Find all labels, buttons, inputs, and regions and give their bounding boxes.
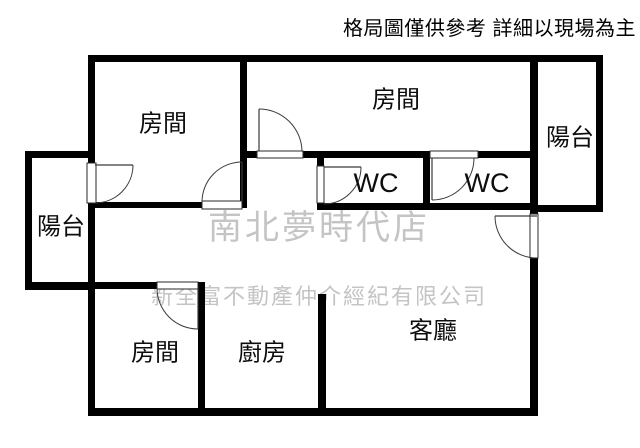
wall: [530, 55, 538, 205]
bedroom-1-door-arc: [202, 162, 242, 202]
wall: [530, 258, 538, 416]
wall: [478, 151, 538, 158]
bedroom-2-door-opening: [257, 151, 303, 158]
wall: [318, 294, 326, 416]
wall: [240, 55, 247, 208]
wc-1-label: WC: [354, 168, 399, 198]
wall: [88, 408, 538, 416]
bedroom-3-door-opening: [157, 282, 198, 289]
wc-1-door-opening: [317, 166, 324, 203]
bedroom-3-door-arc: [157, 288, 198, 329]
wall: [88, 203, 95, 416]
bedroom-1-label: 房間: [139, 111, 187, 138]
wall: [25, 282, 95, 290]
wall: [596, 55, 603, 212]
bedroom-2-door-arc: [259, 109, 302, 151]
wall: [247, 151, 257, 158]
wall: [88, 55, 95, 163]
wall: [88, 55, 603, 62]
wall: [198, 282, 205, 416]
wall: [530, 205, 603, 212]
wall: [88, 282, 157, 289]
floorplan-page: 南北夢時代店 新全富不動產仲介經紀有限公司 房間房間陽台WCWC陽台房間廚房客廳…: [0, 0, 640, 448]
bedroom-3-label: 房間: [131, 340, 179, 367]
wall: [303, 151, 430, 158]
wall: [317, 203, 538, 210]
entry-door-opening: [530, 214, 538, 258]
wall: [423, 158, 430, 203]
floorplan-svg: 房間房間陽台WCWC陽台房間廚房客廳: [0, 0, 640, 448]
living-room-label: 客廳: [409, 318, 457, 345]
wc-2-door-opening: [430, 151, 478, 158]
bedroom-2-label: 房間: [372, 87, 420, 114]
wall: [25, 151, 32, 290]
wall: [88, 202, 202, 208]
balcony-left-door-arc: [95, 165, 133, 203]
balcony-left-label: 陽台: [37, 214, 85, 241]
kitchen-label: 廚房: [238, 340, 286, 367]
wall: [25, 151, 95, 158]
wc-2-label: WC: [465, 168, 510, 198]
bedroom-1-door-opening: [202, 201, 242, 209]
balcony-right-label: 陽台: [546, 125, 594, 152]
balcony-left-door-opening: [87, 163, 96, 203]
